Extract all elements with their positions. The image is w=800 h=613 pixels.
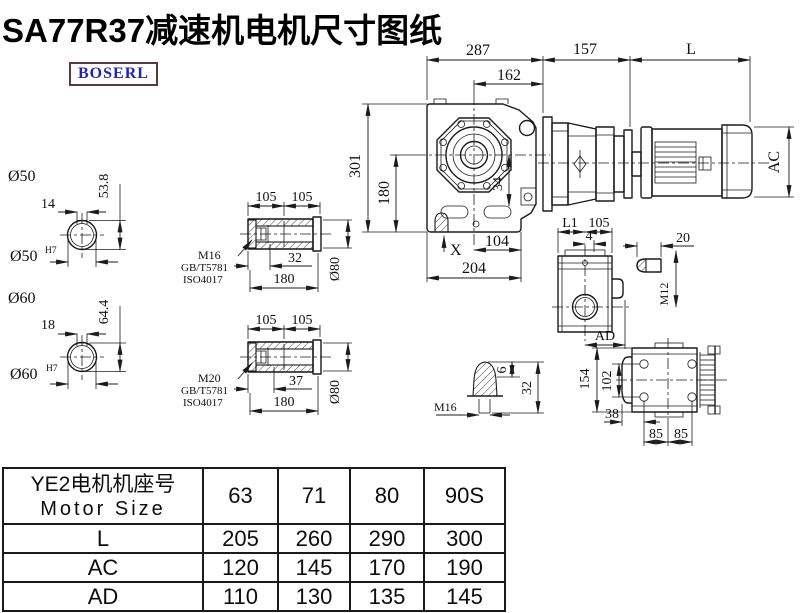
bolt-label: M16 [198,248,221,262]
bolt-label: M20 [198,371,221,385]
dim-L1: L1 [562,216,578,231]
row-label: AC [3,553,203,582]
dim-105a: 105 [256,313,277,328]
label-dia50: Ø50 [8,168,36,185]
label-dia50-fit-sup: H7 [45,246,57,256]
dim-depth: 37 [289,374,303,389]
table-row-AD: AD 110 130 135 145 [3,582,505,611]
table-cell: 300 [424,524,505,553]
dim-204: 204 [462,260,486,277]
dim-180: 180 [376,181,393,205]
dim-104: 104 [485,233,509,250]
table-cell: 170 [350,553,424,582]
front-view: X 287 162 301 180 34 104 204 [347,42,550,282]
std-label-1: GB/T5781 [181,262,228,274]
thread-label: M16 [434,400,457,414]
table-header-motor-size: YE2电机机座号 Motor Size [3,468,203,524]
std-label-2: ISO4017 [183,397,223,409]
dim-105b: 105 [292,190,313,205]
label-dia50-fit: Ø50 [10,248,38,265]
dim-85a: 85 [649,427,663,442]
thread-label: M12 [657,283,671,306]
dim-34: 34 [491,177,506,191]
table-row-L: L 205 260 290 300 [3,524,505,553]
col-header: 71 [278,468,350,524]
header-cn: YE2电机机座号 [4,472,202,497]
dim-dia80: Ø80 [328,380,343,404]
dim-key-w: 18 [41,318,55,333]
row-label: AD [3,582,203,611]
dim-key-h: 53.8 [97,174,112,199]
col-header: 80 [350,468,424,524]
key-detail: 20 M12 [623,231,694,307]
dim-AD: AD [595,329,615,344]
dim-102: 102 [600,371,615,392]
std-label-1: GB/T5781 [181,385,228,397]
gearbox-back-view: 154 102 38 85 85 [578,338,728,446]
dim-L: L [686,41,696,58]
dim-105b: 105 [292,313,313,328]
dim-key-w: 14 [41,197,55,212]
dim-dia80: Ø80 [328,257,343,281]
col-header: 90S [424,468,505,524]
row-label: L [3,524,203,553]
dim-38: 38 [605,407,619,422]
dim-AC: AC [766,151,783,173]
table-cell: 290 [350,524,424,553]
dim-4: 4 [586,229,593,244]
table-cell: 135 [350,582,424,611]
hollow-shaft-m20: M20 GB/T5781 ISO4017 105 105 37 180 Ø80 [181,313,352,415]
dim-x: X [450,242,462,259]
table-cell: 260 [278,524,350,553]
dim-85b: 85 [674,427,688,442]
label-dia60: Ø60 [8,290,36,307]
dim-6: 6 [495,367,510,374]
motor-size-table: YE2电机机座号 Motor Size 63 71 80 90S L 205 2… [2,467,506,612]
dim-key-h: 64.4 [97,300,112,325]
motor-side-view: 157 L AC [538,41,794,211]
table-cell: 120 [203,553,278,582]
label-dia60-fit-sup: H7 [46,364,58,374]
table-cell: 190 [424,553,505,582]
table-cell: 145 [278,553,350,582]
header-en: Motor Size [4,498,202,520]
table-cell: 130 [278,582,350,611]
table-cell: 110 [203,582,278,611]
plug-detail: 6 32 M16 [434,362,544,415]
technical-drawing: X 287 162 301 180 34 104 204 [0,0,800,465]
dim-len: 180 [274,395,295,410]
dim-20: 20 [676,231,690,246]
std-label-2: ISO4017 [183,274,223,286]
gearbox-top-view: L1 105 4 AD [552,216,632,349]
col-header: 63 [203,468,278,524]
dim-287: 287 [466,42,490,59]
shaft-section-60: Ø60 18 64.4 Ø60 H7 [8,290,126,389]
dim-162: 162 [497,67,521,84]
dim-32: 32 [520,381,535,395]
motor-fins [655,147,696,177]
dim-len: 180 [274,272,295,287]
table-cell: 145 [424,582,505,611]
dim-154: 154 [578,369,593,390]
dim-301: 301 [347,154,364,178]
label-dia60-fit: Ø60 [10,366,38,383]
dim-depth: 32 [288,251,302,266]
dim-157: 157 [573,41,597,58]
table-row-AC: AC 120 145 170 190 [3,553,505,582]
dim-105a: 105 [256,190,277,205]
shaft-section-50: Ø50 14 53.8 Ø50 H7 [8,168,126,267]
back-fins [700,355,715,405]
hollow-shaft-m16: M16 GB/T5781 ISO4017 105 105 32 180 Ø80 [181,190,352,292]
table-cell: 205 [203,524,278,553]
plug-foot [435,213,448,232]
drawing-sheet: SA77R37减速机电机尺寸图纸 BOSERL [0,0,800,613]
